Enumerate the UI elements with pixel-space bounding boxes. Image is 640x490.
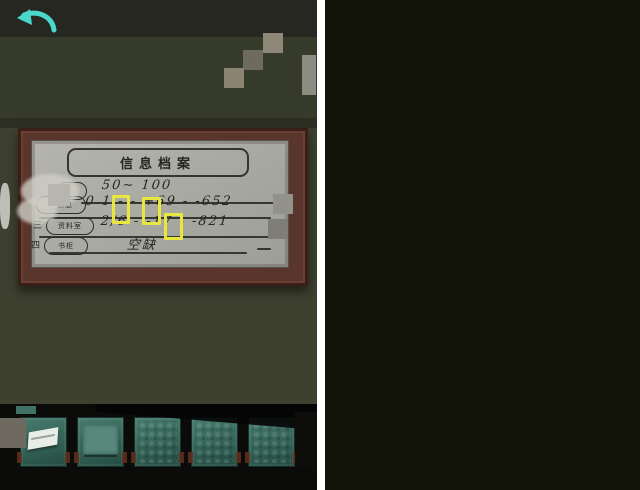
censor-block <box>273 194 293 214</box>
wall-shadow-line <box>0 118 317 128</box>
shadow-block <box>295 412 317 467</box>
inventory-bar <box>0 404 317 490</box>
highlight-box <box>112 195 130 224</box>
accent-mark <box>17 452 22 463</box>
right-screenshot-panel: 用户信息用户信息用户信息用户信息用户信息用户信息用户信息用户信息用户信息用户信息… <box>325 0 640 490</box>
row4-dash <box>257 248 271 250</box>
row1-value: 50~ 100 <box>76 178 198 193</box>
screenshot-stage: 信息档案 50~ 100 户信息 0 1 - - +69 - -652 三 资料… <box>0 0 640 490</box>
highlight-box <box>164 213 183 240</box>
accent-mark <box>65 452 70 463</box>
teal-sliver <box>16 406 36 414</box>
censor-block <box>268 219 288 239</box>
row4-label: 书柜 <box>58 241 74 251</box>
censor-block <box>48 184 70 206</box>
highlight-box <box>142 197 161 225</box>
accent-mark <box>236 452 241 463</box>
note-paper: 信息档案 50~ 100 户信息 0 1 - - +69 - -652 三 资料… <box>31 140 289 268</box>
inventory-slot-paper-note[interactable] <box>20 417 67 467</box>
censor-block <box>243 50 263 70</box>
accent-mark <box>188 452 193 463</box>
row4-number: 四 <box>31 238 40 251</box>
inventory-slot-teal-card[interactable] <box>77 417 124 467</box>
panel-gutter <box>317 0 325 490</box>
accent-mark <box>179 452 184 463</box>
inventory-slot-pattern-book[interactable] <box>134 417 181 467</box>
pattern-icon <box>195 421 234 463</box>
pattern-icon <box>138 421 177 463</box>
card-line <box>84 455 117 457</box>
censor-block <box>0 418 26 448</box>
left-screenshot-panel: 信息档案 50~ 100 户信息 0 1 - - +69 - -652 三 资料… <box>0 0 317 490</box>
accent-mark <box>74 452 79 463</box>
note-title-box: 信息档案 <box>67 148 249 177</box>
note-title: 信息档案 <box>120 153 196 172</box>
card-icon <box>83 425 118 454</box>
inventory-slot-pattern-book[interactable] <box>191 417 238 467</box>
note-frame[interactable]: 信息档案 50~ 100 户信息 0 1 - - +69 - -652 三 资料… <box>18 128 308 286</box>
accent-mark <box>245 452 250 463</box>
censor-block <box>263 33 283 53</box>
row4-line <box>49 252 247 254</box>
censor-block <box>302 55 316 95</box>
censor-block <box>224 68 244 88</box>
censor-blob <box>0 183 10 229</box>
back-arrow-icon[interactable] <box>14 6 58 36</box>
accent-mark <box>131 452 136 463</box>
accent-mark <box>122 452 127 463</box>
